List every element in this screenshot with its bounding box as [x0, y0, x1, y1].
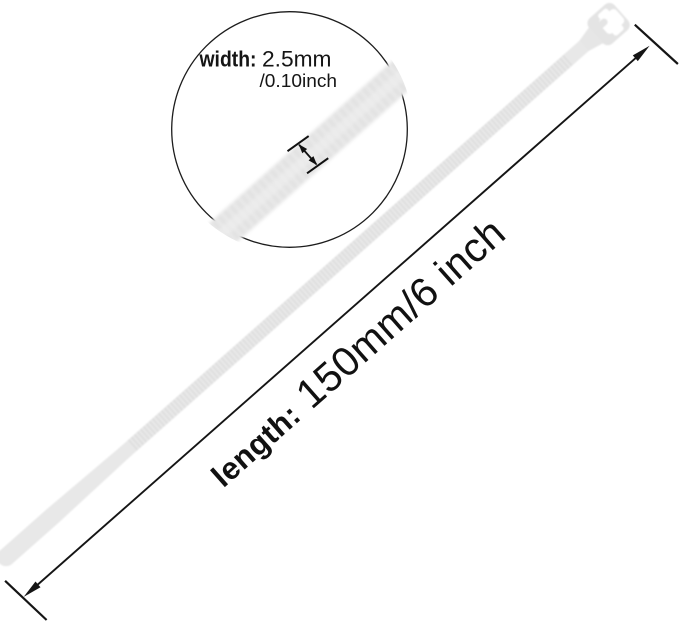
svg-text:width:: width:	[199, 47, 257, 72]
svg-text:2.5mm: 2.5mm	[262, 47, 332, 72]
svg-text:/0.10inch: /0.10inch	[260, 71, 338, 91]
